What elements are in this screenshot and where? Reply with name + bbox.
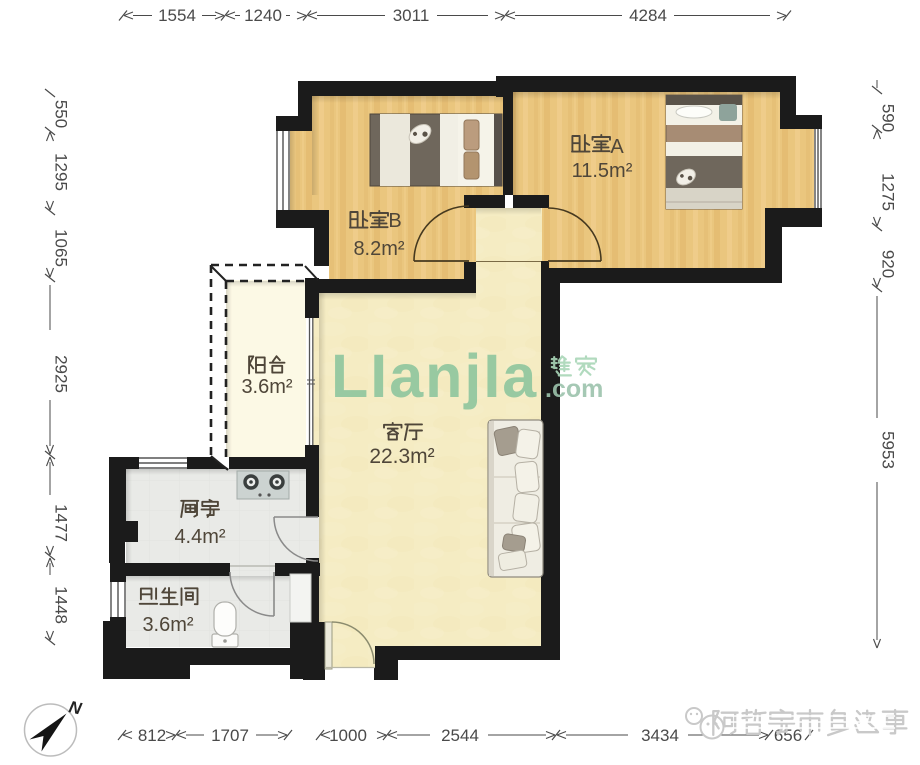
svg-text:4284: 4284	[629, 6, 667, 25]
svg-text:1240: 1240	[244, 6, 282, 25]
svg-text:2925: 2925	[51, 355, 70, 393]
svg-text:920: 920	[878, 250, 897, 278]
svg-text:22.3m²: 22.3m²	[369, 445, 434, 468]
svg-text:550: 550	[51, 100, 70, 128]
svg-text:812: 812	[138, 726, 166, 745]
svg-text:3011: 3011	[393, 6, 430, 25]
svg-text:3434: 3434	[641, 726, 679, 745]
svg-text:LIanjIa: LIanjIa	[331, 342, 538, 410]
svg-text:B: B	[388, 210, 401, 232]
svg-text:5953: 5953	[878, 431, 897, 469]
svg-text:1275: 1275	[878, 173, 897, 211]
svg-text:1000: 1000	[329, 726, 367, 745]
svg-text:3.6m²: 3.6m²	[142, 614, 193, 636]
svg-text:656: 656	[774, 726, 802, 745]
svg-text:590: 590	[878, 104, 897, 132]
svg-text:4.4m²: 4.4m²	[174, 526, 225, 548]
svg-text:.com: .com	[545, 375, 603, 403]
svg-text:1554: 1554	[158, 6, 196, 25]
svg-text:11.5m²: 11.5m²	[572, 160, 633, 182]
svg-text:3.6m²: 3.6m²	[241, 376, 292, 398]
svg-text:1295: 1295	[51, 153, 70, 191]
svg-text:8.2m²: 8.2m²	[353, 238, 404, 260]
svg-text:1707: 1707	[211, 726, 249, 745]
svg-text:2544: 2544	[441, 726, 479, 745]
svg-text:1477: 1477	[51, 504, 70, 542]
svg-text:1065: 1065	[51, 229, 70, 267]
svg-text:1448: 1448	[51, 586, 70, 624]
svg-text:A: A	[610, 136, 624, 158]
